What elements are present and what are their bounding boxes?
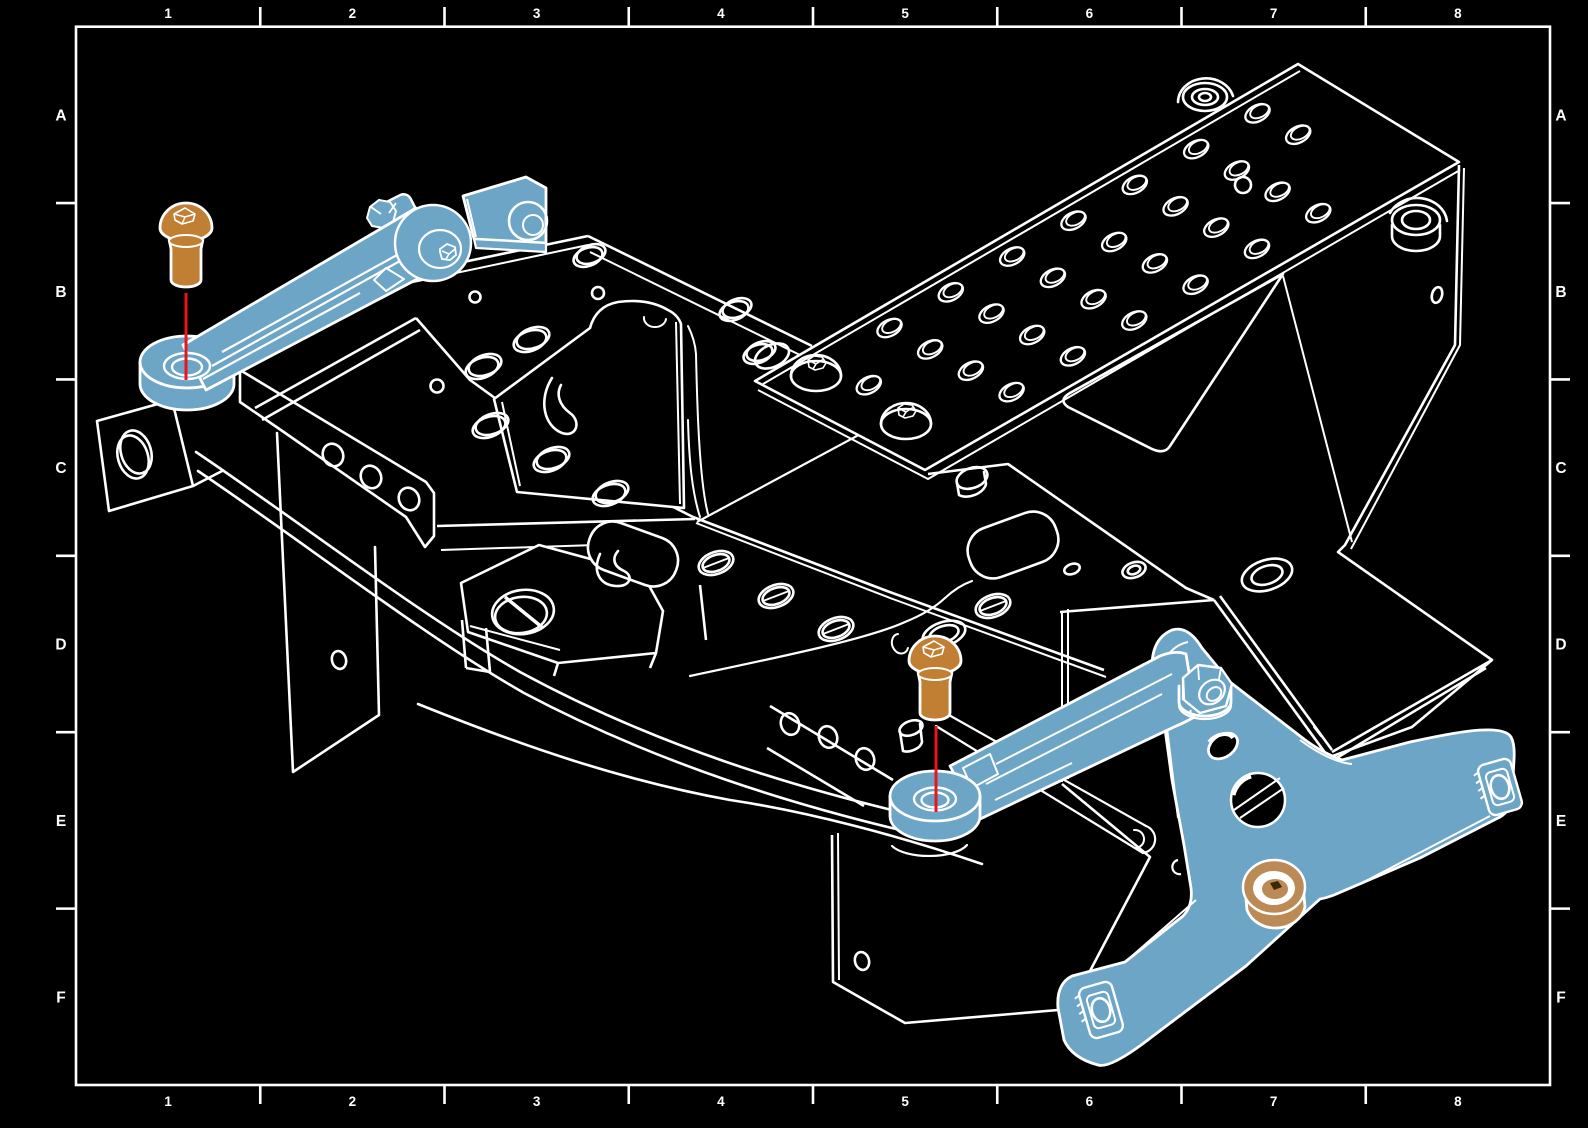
svg-text:6: 6 — [1086, 6, 1094, 21]
svg-text:2: 2 — [349, 6, 357, 21]
svg-text:F: F — [56, 989, 65, 1006]
svg-text:B: B — [1555, 284, 1566, 301]
svg-text:F: F — [1556, 989, 1565, 1006]
svg-text:D: D — [1555, 637, 1566, 654]
svg-text:7: 7 — [1270, 6, 1278, 21]
svg-text:A: A — [1555, 107, 1566, 124]
svg-text:E: E — [1556, 813, 1566, 830]
svg-text:6: 6 — [1086, 1094, 1094, 1109]
svg-text:5: 5 — [901, 1094, 909, 1109]
svg-text:B: B — [55, 284, 66, 301]
svg-text:A: A — [55, 107, 66, 124]
svg-text:D: D — [55, 637, 66, 654]
svg-text:E: E — [56, 813, 66, 830]
svg-text:8: 8 — [1454, 1094, 1462, 1109]
svg-text:7: 7 — [1270, 1094, 1278, 1109]
svg-text:2: 2 — [349, 1094, 357, 1109]
svg-text:3: 3 — [533, 1094, 541, 1109]
svg-text:3: 3 — [533, 6, 541, 21]
svg-text:4: 4 — [717, 6, 725, 21]
svg-text:C: C — [1555, 460, 1566, 477]
svg-text:4: 4 — [717, 1094, 725, 1109]
svg-text:8: 8 — [1454, 6, 1462, 21]
svg-text:5: 5 — [901, 6, 909, 21]
svg-text:C: C — [55, 460, 66, 477]
svg-text:1: 1 — [164, 6, 172, 21]
svg-text:1: 1 — [164, 1094, 172, 1109]
